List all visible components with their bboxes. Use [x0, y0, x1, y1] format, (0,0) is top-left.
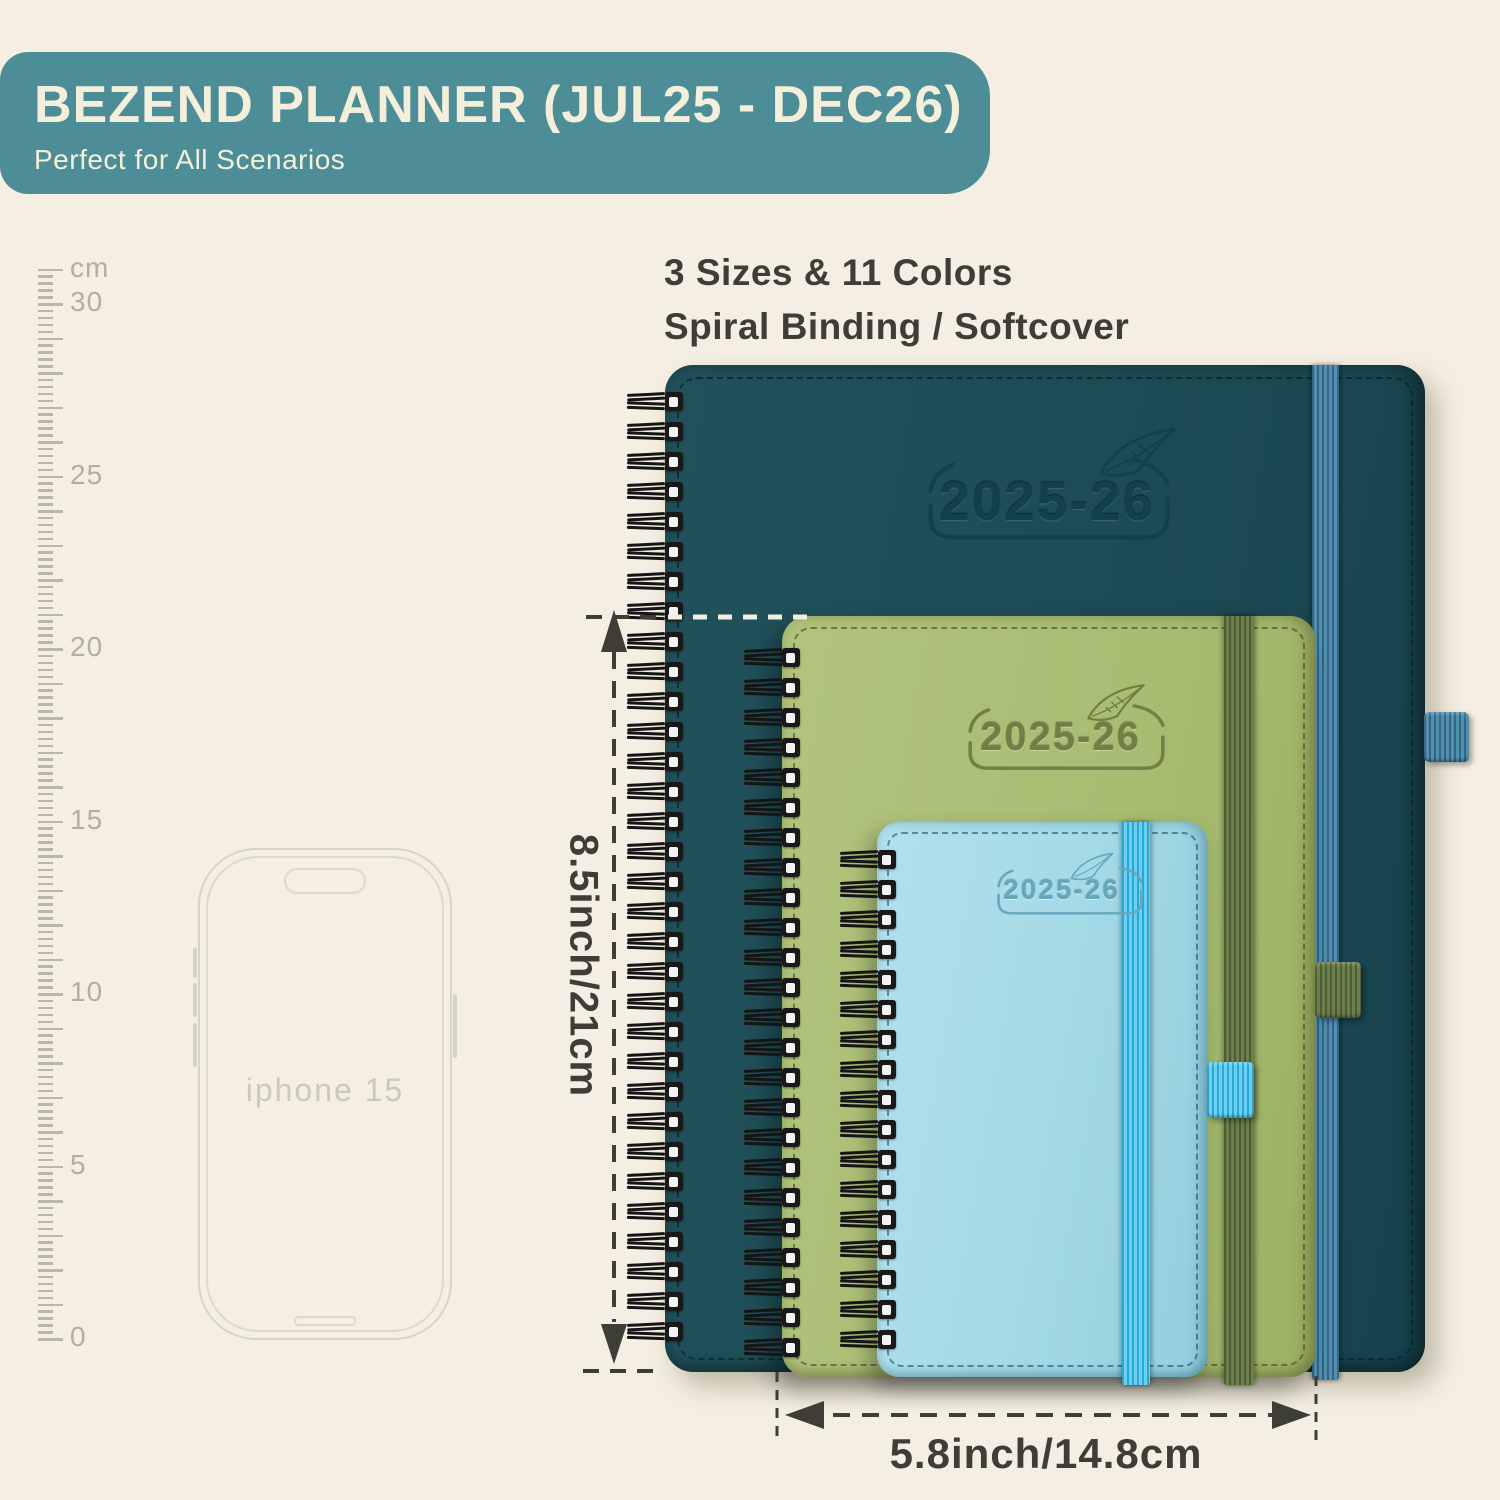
ruler-tick [38, 655, 53, 658]
spiral-coil [744, 648, 800, 668]
ruler-tick [38, 400, 53, 403]
planner-large-elastic-band [1312, 365, 1339, 1380]
dynamic-island [284, 868, 366, 894]
ruler-tick [38, 890, 63, 893]
spiral-coil [744, 828, 800, 848]
spiral-coil [840, 1090, 896, 1110]
features-line1: 3 Sizes & 11 Colors [664, 246, 1129, 300]
spiral-coil [840, 1180, 896, 1200]
ruler-tick [38, 317, 53, 320]
ruler-label-25: 25 [70, 459, 103, 491]
ruler-tick [38, 448, 53, 451]
spiral-coil [744, 1308, 800, 1328]
ruler-tick [38, 1248, 53, 1251]
spiral-coil [744, 708, 800, 728]
spiral-coil [627, 1082, 683, 1102]
spiral-coil [627, 1292, 683, 1312]
height-dimension-label: 8.5inch/21cm [561, 816, 606, 1116]
ruler-tick [38, 1028, 63, 1031]
ruler-tick [38, 455, 53, 458]
spiral-coil [744, 1068, 800, 1088]
spiral-coil [840, 1270, 896, 1290]
spiral-coil [744, 1218, 800, 1238]
spiral-coil [744, 1248, 800, 1268]
ruler: cm302520151050 [38, 240, 168, 1410]
ruler-tick [38, 358, 53, 361]
spiral-coil [627, 782, 683, 802]
ruler-tick [38, 703, 53, 706]
ruler-tick [38, 1041, 53, 1044]
ruler-tick [38, 717, 63, 720]
ruler-tick [38, 538, 53, 541]
spiral-coil [840, 850, 896, 870]
spiral-coil [627, 902, 683, 922]
arrow-left-icon [785, 1401, 824, 1429]
ruler-tick [38, 503, 53, 506]
spiral-coil [744, 798, 800, 818]
ruler-tick [38, 821, 63, 824]
ruler-tick [38, 510, 63, 513]
arrow-up-icon [601, 610, 627, 652]
ruler-tick [38, 883, 53, 886]
ruler-tick [38, 1235, 63, 1238]
ruler-tick [38, 420, 53, 423]
ruler-label-30: 30 [70, 286, 103, 318]
ruler-tick [38, 593, 53, 596]
ruler-tick [38, 551, 53, 554]
ruler-tick [38, 669, 53, 672]
planner-small-year-label: 2025-26 [1003, 874, 1120, 906]
spiral-coil [840, 910, 896, 930]
spiral-coil [627, 1112, 683, 1132]
banner-title: BEZEND PLANNER (JUL25 - DEC26) [34, 75, 972, 135]
ruler-tick [38, 269, 63, 272]
banner-subtitle: Perfect for All Scenarios [34, 144, 972, 176]
ruler-tick [38, 1083, 53, 1086]
ruler-tick [38, 696, 53, 699]
ruler-tick [38, 1097, 63, 1100]
spiral-coil [840, 1120, 896, 1140]
ruler-tick [38, 565, 53, 568]
ruler-label-5: 5 [70, 1149, 87, 1181]
planner-large-logo: 2025-26 [915, 425, 1215, 555]
spiral-coil [627, 572, 683, 592]
spiral-coil [744, 738, 800, 758]
ruler-tick [38, 1069, 53, 1072]
ruler-tick [38, 765, 53, 768]
features-text: 3 Sizes & 11 Colors Spiral Binding / Sof… [664, 246, 1129, 354]
ruler-tick [38, 1166, 63, 1169]
ruler-tick [38, 986, 53, 989]
ruler-tick [38, 1207, 53, 1210]
spiral-coil [627, 1232, 683, 1252]
ruler-tick [38, 1138, 53, 1141]
ruler-tick [38, 896, 53, 899]
width-dimension-label: 5.8inch/14.8cm [886, 1430, 1206, 1478]
ruler-tick [38, 489, 53, 492]
ruler-tick [38, 1000, 53, 1003]
spiral-coil [744, 1098, 800, 1118]
ruler-tick [38, 1255, 53, 1258]
ruler-tick [38, 572, 53, 575]
ruler-tick [38, 1221, 53, 1224]
ruler-tick [38, 614, 63, 617]
spiral-coil [627, 992, 683, 1012]
ruler-tick [38, 1172, 53, 1175]
spiral-coil [627, 1052, 683, 1072]
spiral-coil [744, 858, 800, 878]
ruler-tick [38, 938, 53, 941]
arrow-right-icon [1272, 1401, 1311, 1429]
header-banner: BEZEND PLANNER (JUL25 - DEC26) Perfect f… [0, 52, 990, 194]
ruler-tick [38, 1145, 53, 1148]
spiral-coil [744, 1278, 800, 1298]
ruler-tick [38, 1055, 53, 1058]
spiral-coil [840, 1240, 896, 1260]
ruler-tick [38, 579, 63, 582]
ruler-tick [38, 965, 53, 968]
spiral-coil [627, 452, 683, 472]
spiral-coil [627, 1172, 683, 1192]
ruler-tick [38, 1276, 53, 1279]
spiral-coil [744, 888, 800, 908]
spiral-coil [627, 602, 683, 622]
ruler-tick [38, 1290, 53, 1293]
ruler-tick [38, 1131, 63, 1134]
ruler-tick [38, 827, 53, 830]
ruler-tick [38, 558, 53, 561]
spiral-coil [744, 678, 800, 698]
ruler-tick [38, 1021, 53, 1024]
spiral-coil [627, 872, 683, 892]
ruler-tick [38, 779, 53, 782]
spiral-coil [627, 932, 683, 952]
ruler-tick [38, 931, 53, 934]
spiral-coil [744, 1038, 800, 1058]
spiral-coil [744, 1158, 800, 1178]
ruler-tick [38, 338, 63, 341]
ruler-tick [38, 641, 53, 644]
ruler-tick [38, 434, 53, 437]
iphone-speaker [294, 1316, 356, 1326]
ruler-tick [38, 462, 53, 465]
spiral-coil [840, 940, 896, 960]
ruler-tick [38, 1262, 53, 1265]
spiral-coil [627, 812, 683, 832]
ruler-tick [38, 386, 53, 389]
ruler-tick [38, 524, 53, 527]
ruler-label-cm: cm [70, 252, 109, 284]
ruler-tick [38, 752, 63, 755]
ruler-tick [38, 758, 53, 761]
spiral-coil [627, 1262, 683, 1282]
spiral-coil [744, 1188, 800, 1208]
planner-small-pen-loop [1207, 1062, 1254, 1118]
ruler-tick [38, 289, 53, 292]
ruler-tick [38, 745, 53, 748]
ruler-tick [38, 855, 63, 858]
spiral-coil [627, 1142, 683, 1162]
spiral-coil [840, 1000, 896, 1020]
ruler-tick [38, 676, 53, 679]
planner-small: 2025-26 [877, 822, 1208, 1377]
ruler-tick [38, 1269, 63, 1272]
ruler-tick [38, 910, 53, 913]
ruler-tick [38, 731, 53, 734]
planner-small-logo: 2025-26 [992, 848, 1157, 933]
ruler-tick [38, 772, 53, 775]
spiral-coil [744, 978, 800, 998]
ruler-tick [38, 1014, 53, 1017]
ruler-tick [38, 331, 53, 334]
spiral-coil [627, 752, 683, 772]
spiral-coil [627, 662, 683, 682]
ruler-tick [38, 876, 53, 879]
ruler-tick [38, 379, 53, 382]
ruler-tick [38, 710, 53, 713]
ruler-tick [38, 1048, 53, 1051]
ruler-tick [38, 1200, 63, 1203]
ruler-tick [38, 620, 53, 623]
ruler-tick [38, 724, 53, 727]
spiral-coil [840, 970, 896, 990]
ruler-tick [38, 496, 53, 499]
ruler-tick [38, 814, 53, 817]
ruler-tick [38, 869, 53, 872]
planner-medium-elastic-band [1224, 616, 1254, 1385]
spiral-coil [627, 512, 683, 532]
ruler-tick [38, 1110, 53, 1113]
ruler-tick [38, 303, 63, 306]
ruler-tick [38, 1228, 53, 1231]
ruler-tick [38, 903, 53, 906]
ruler-tick [38, 1062, 63, 1065]
ruler-tick [38, 545, 63, 548]
ruler-tick [38, 1310, 53, 1313]
ruler-tick [38, 1317, 53, 1320]
arrow-down-icon [601, 1324, 627, 1364]
ruler-tick [38, 1034, 53, 1037]
product-image: BEZEND PLANNER (JUL25 - DEC26) Perfect f… [0, 0, 1500, 1500]
ruler-tick [38, 800, 53, 803]
ruler-tick [38, 1103, 53, 1106]
spiral-coil [840, 880, 896, 900]
ruler-tick [38, 634, 53, 637]
ruler-tick [38, 586, 53, 589]
ruler-tick [38, 310, 53, 313]
iphone-power-button [453, 994, 457, 1058]
spiral-coil [627, 392, 683, 412]
ruler-tick [38, 1338, 63, 1341]
spiral-coil [840, 1300, 896, 1320]
ruler-tick [38, 1304, 63, 1307]
iphone-action-button [193, 948, 197, 978]
spiral-coil [627, 962, 683, 982]
ruler-tick [38, 917, 53, 920]
spiral-coil [744, 1338, 800, 1358]
ruler-tick [38, 848, 53, 851]
ruler-tick [38, 945, 53, 948]
planner-medium-logo: 2025-26 [960, 678, 1200, 793]
ruler-label-20: 20 [70, 631, 103, 663]
ruler-tick [38, 372, 63, 375]
ruler-tick [38, 344, 53, 347]
ruler-tick [38, 648, 63, 651]
spiral-coil [627, 632, 683, 652]
spiral-coil [627, 542, 683, 562]
ruler-tick [38, 296, 53, 299]
spiral-coil [840, 1330, 896, 1350]
ruler-tick [38, 1152, 53, 1155]
planner-medium-pen-loop [1315, 962, 1361, 1018]
ruler-tick [38, 282, 53, 285]
planner-medium-year-label: 2025-26 [980, 715, 1141, 760]
ruler-tick [38, 1324, 53, 1327]
ruler-tick [38, 841, 53, 844]
ruler-tick [38, 972, 53, 975]
ruler-tick [38, 517, 53, 520]
spiral-coil [744, 768, 800, 788]
ruler-tick [38, 441, 63, 444]
iphone-label: iphone 15 [200, 1072, 450, 1109]
ruler-tick [38, 476, 63, 479]
ruler-tick [38, 959, 63, 962]
ruler-label-10: 10 [70, 976, 103, 1008]
ruler-tick [38, 600, 53, 603]
ruler-tick [38, 689, 53, 692]
spiral-coil [627, 722, 683, 742]
spiral-coil [627, 422, 683, 442]
ruler-tick [38, 1331, 53, 1334]
spiral-coil [840, 1030, 896, 1050]
iphone-volume-up-button [193, 983, 197, 1017]
ruler-tick [38, 1193, 53, 1196]
ruler-tick [38, 862, 53, 865]
spiral-coil [840, 1210, 896, 1230]
ruler-tick [38, 993, 63, 996]
ruler-tick [38, 1117, 53, 1120]
ruler-tick [38, 1159, 53, 1162]
features-line2: Spiral Binding / Softcover [664, 300, 1129, 354]
planner-large-pen-loop [1424, 712, 1469, 762]
ruler-tick [38, 627, 53, 630]
spiral-coil [744, 948, 800, 968]
ruler-tick [38, 324, 53, 327]
ruler-tick [38, 393, 53, 396]
ruler-tick [38, 924, 63, 927]
ruler-tick [38, 275, 53, 278]
ruler-tick [38, 683, 63, 686]
ruler-label-0: 0 [70, 1321, 87, 1353]
spiral-coil [744, 1128, 800, 1148]
spiral-coil [627, 1322, 683, 1342]
ruler-tick [38, 1076, 53, 1079]
ruler-tick [38, 1124, 53, 1127]
spiral-coil [840, 1150, 896, 1170]
spiral-coil [840, 1060, 896, 1080]
spiral-coil [627, 1022, 683, 1042]
ruler-tick [38, 1214, 53, 1217]
ruler-tick [38, 531, 53, 534]
ruler-tick [38, 834, 53, 837]
ruler-tick [38, 662, 53, 665]
ruler-tick [38, 952, 53, 955]
spiral-coil [627, 842, 683, 862]
ruler-tick [38, 1283, 53, 1286]
spiral-coil [627, 1202, 683, 1222]
ruler-tick [38, 482, 53, 485]
spiral-coil [627, 482, 683, 502]
ruler-tick [38, 1179, 53, 1182]
ruler-tick [38, 807, 53, 810]
ruler-tick [38, 786, 63, 789]
spiral-coil [744, 918, 800, 938]
ruler-tick [38, 979, 53, 982]
ruler-tick [38, 1297, 53, 1300]
iphone-volume-down-button [193, 1023, 197, 1067]
ruler-tick [38, 1090, 53, 1093]
ruler-tick [38, 469, 53, 472]
ruler-tick [38, 793, 53, 796]
ruler-tick [38, 607, 53, 610]
ruler-tick [38, 427, 53, 430]
ruler-tick [38, 1241, 53, 1244]
ruler-tick [38, 738, 53, 741]
iphone-outline: iphone 15 [198, 848, 452, 1340]
ruler-tick [38, 413, 53, 416]
planner-large-year-label: 2025-26 [939, 469, 1155, 533]
spiral-coil [744, 1008, 800, 1028]
spiral-coil [627, 692, 683, 712]
ruler-tick [38, 351, 53, 354]
ruler-tick [38, 365, 53, 368]
ruler-tick [38, 1007, 53, 1010]
ruler-tick [38, 1186, 53, 1189]
ruler-tick [38, 407, 63, 410]
ruler-label-15: 15 [70, 804, 103, 836]
